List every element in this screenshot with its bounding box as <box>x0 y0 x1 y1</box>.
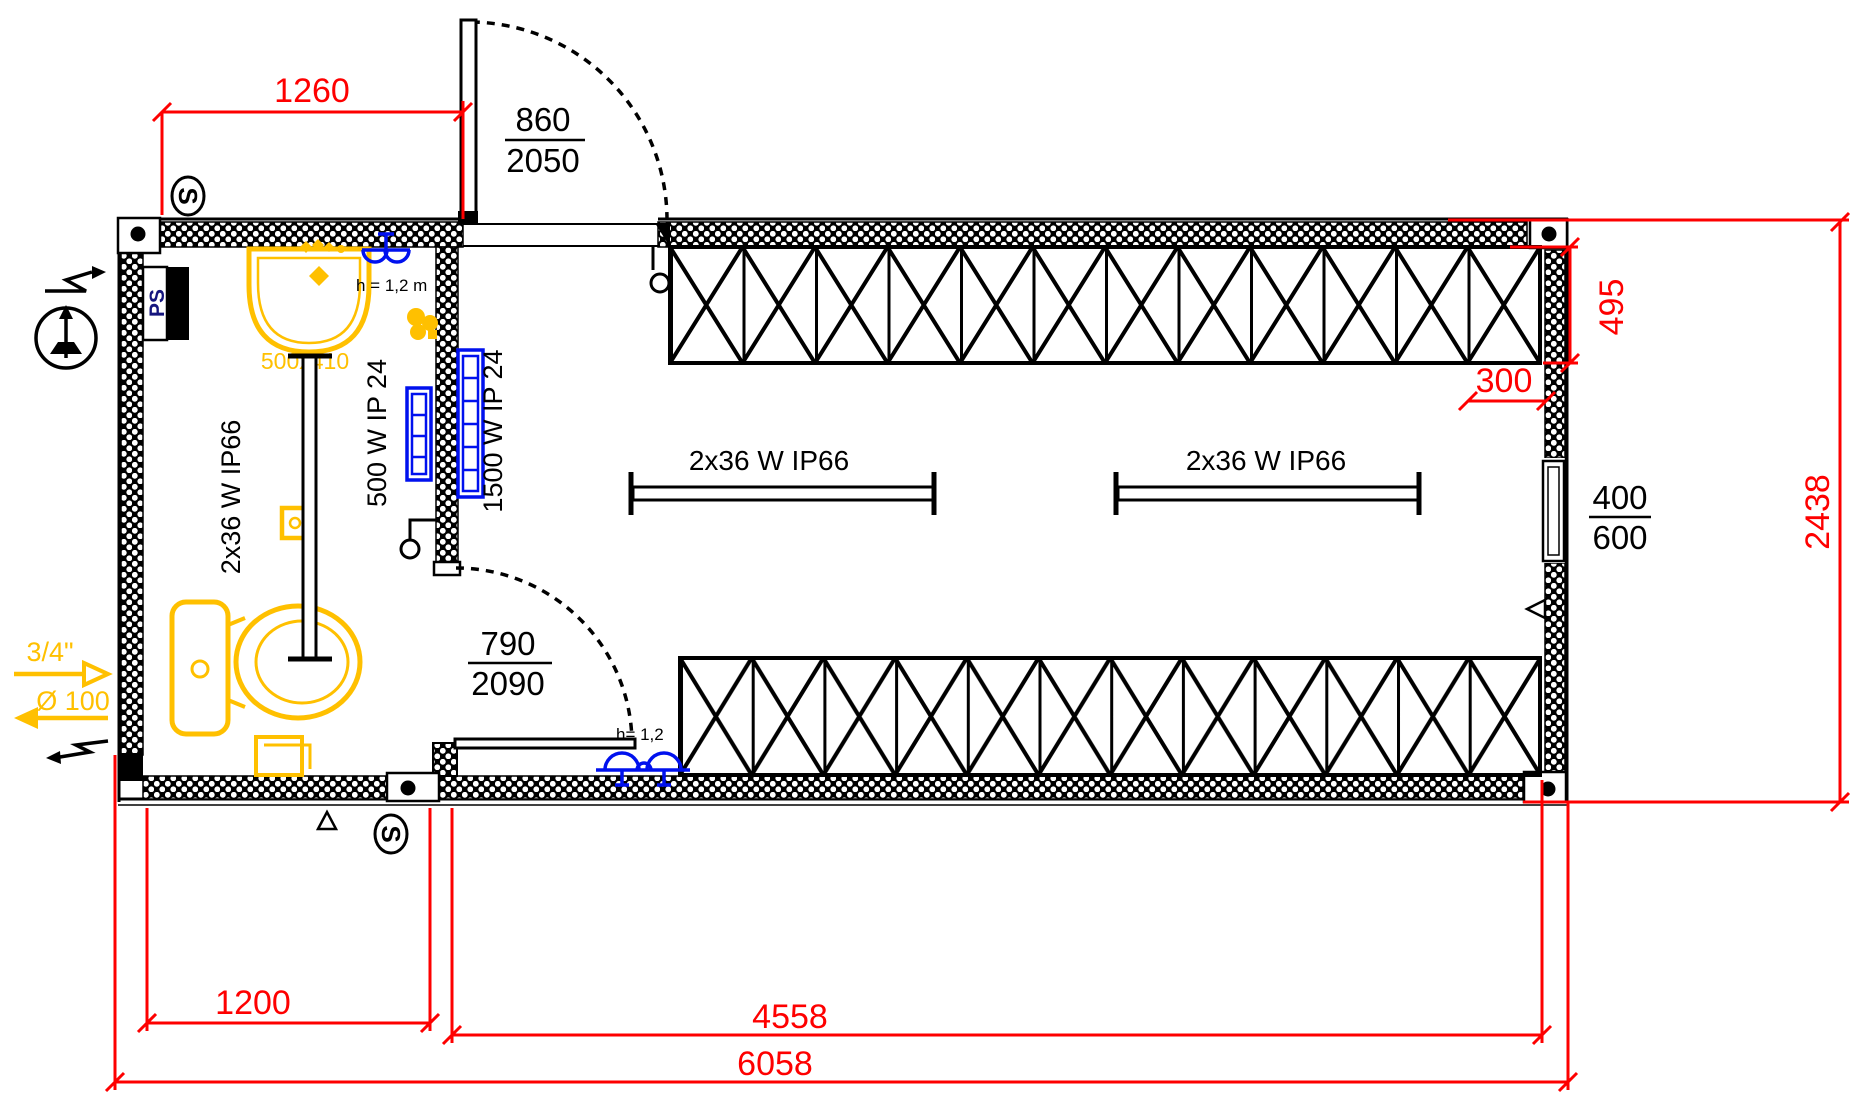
dim-2438-label: 2438 <box>1799 474 1837 550</box>
luminaire-main-right-label: 2x36 W IP66 <box>1186 445 1346 476</box>
top-door-threshold <box>463 224 658 246</box>
window-width: 400 <box>1592 479 1647 516</box>
luminaire-bathroom-label: 2x36 W IP66 <box>216 420 246 575</box>
wall-right-lower <box>1545 563 1565 772</box>
wall-bottom <box>143 776 1523 799</box>
wall-top-left-segment <box>118 222 463 247</box>
drain-label: Ø 100 <box>36 686 110 716</box>
floor-plan-canvas: 500x410 3/4" Ø 100 500 W IP 24 <box>0 0 1871 1101</box>
wall-left <box>121 250 143 755</box>
entrance-door-width: 860 <box>515 101 570 138</box>
storage-rack-bottom <box>680 658 1540 775</box>
dim-1260-lines <box>162 101 463 219</box>
sink <box>249 239 369 352</box>
window-size-label: 400 600 <box>1589 479 1651 556</box>
dim-300-label: 300 <box>1476 362 1533 400</box>
toilet-cistern <box>172 602 228 734</box>
dim-1200-label: 1200 <box>215 984 291 1022</box>
pull-switch-entrance <box>651 247 669 292</box>
luminaire-main-left-label: 2x36 W IP66 <box>689 445 849 476</box>
floor-plan-drawing: 500x410 3/4" Ø 100 500 W IP 24 <box>0 0 1871 1101</box>
vent-triangle-right <box>1527 600 1545 618</box>
drain-arrow-icon <box>14 707 38 729</box>
entrance-door-size-label: 860 2050 <box>505 101 585 179</box>
water-supply-annotation: 3/4" <box>14 637 108 685</box>
internal-door-size-label: 790 2090 <box>468 625 552 702</box>
supply-cable-arrow-top <box>45 266 106 291</box>
internal-door-height: 2090 <box>471 665 544 702</box>
dim-6058-label: 6058 <box>737 1045 813 1083</box>
switch-symbol-top: S <box>172 177 204 215</box>
heater-1500w-label: 1500 W IP 24 <box>478 349 508 512</box>
dim-495-label: 495 <box>1593 279 1631 336</box>
luminaire-main-right <box>1116 472 1419 515</box>
floor-drain <box>256 737 310 775</box>
entrance-door-height: 2050 <box>506 142 579 179</box>
internal-door-leaf <box>455 739 635 748</box>
window-height: 600 <box>1592 519 1647 556</box>
socket-double-height-label: h= 1,2 <box>616 725 664 744</box>
heater-500w <box>407 388 431 480</box>
corner-block-bottom-left <box>118 753 143 781</box>
dim-4558-label: 4558 <box>752 998 828 1036</box>
wall-right-upper <box>1545 250 1565 458</box>
ps-panel: PS <box>143 267 189 340</box>
supply-arrow-icon <box>84 663 108 685</box>
luminaire-main-left <box>631 472 934 515</box>
switch-symbol-bottom: S <box>375 815 407 853</box>
corner-casting-hole <box>131 227 146 242</box>
pull-switch-bathroom <box>401 520 437 558</box>
partition-door-jamb-bottom <box>433 743 457 776</box>
storage-rack-top <box>670 247 1540 363</box>
drain-annotation: Ø 100 <box>14 686 110 729</box>
water-supply-label: 3/4" <box>26 637 73 667</box>
switch-symbol-letter: S <box>376 825 406 842</box>
socket-above-sink-height-label: h = 1,2 m <box>356 276 427 295</box>
vent-triangle-bottom <box>318 812 336 829</box>
wall-top-right-segment <box>658 222 1527 247</box>
ps-panel-label: PS <box>146 289 169 317</box>
switch-symbol-letter: S <box>173 187 203 204</box>
corner-casting-hole <box>401 781 416 796</box>
earthing-symbol-icon <box>36 305 96 368</box>
vent-clover <box>407 308 438 340</box>
heater-500w-label: 500 W IP 24 <box>362 359 392 507</box>
internal-door-width: 790 <box>480 625 535 662</box>
entrance-door-hinge <box>458 211 478 224</box>
corner-casting-hole <box>1542 227 1557 242</box>
dim-1260-label: 1260 <box>274 72 350 110</box>
window <box>1541 452 1567 571</box>
supply-cable-arrow-bottom <box>46 741 108 764</box>
toilet <box>172 602 360 734</box>
